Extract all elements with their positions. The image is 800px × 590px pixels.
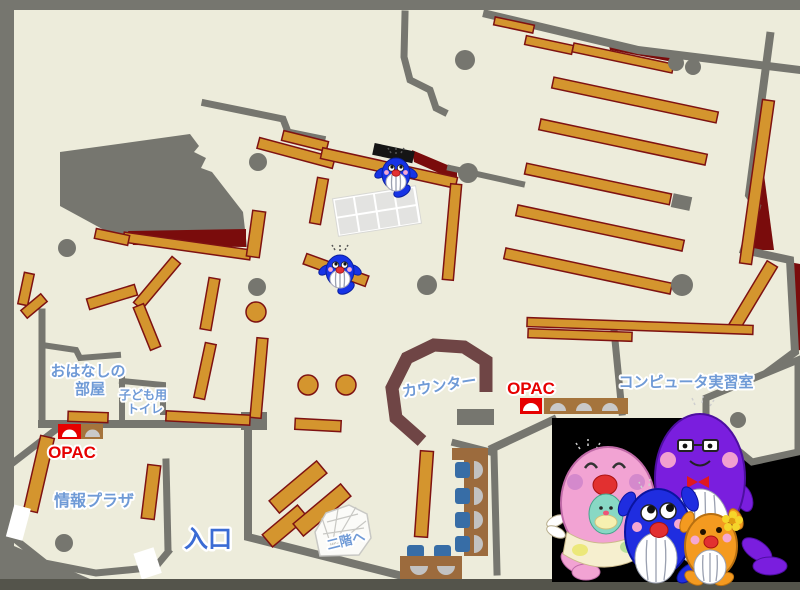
label-opac-right: OPAC: [507, 379, 555, 398]
label-kids-toilet-line1: 子ども用: [119, 388, 167, 402]
pillar: [671, 274, 693, 296]
label-entrance: 入口: [184, 526, 232, 553]
library-floor-map: おはなしの 部屋 子ども用 トイレ OPAC 情報プラザ 入口 カウンター OP…: [0, 0, 800, 590]
table-cell: [398, 206, 419, 225]
label-storytelling-room-line2: 部屋: [75, 380, 105, 398]
pillar: [58, 239, 76, 257]
opac-station-left: [58, 424, 103, 439]
table-cell: [338, 216, 359, 235]
round-table: [336, 375, 356, 395]
pillar: [249, 153, 267, 171]
pillar: [668, 55, 684, 71]
table-cell: [378, 209, 399, 228]
label-kids-toilet-line2: トイレ: [127, 402, 163, 416]
table-cell: [355, 194, 376, 213]
pillar: [458, 163, 478, 183]
round-table: [298, 375, 318, 395]
bookshelf: [295, 418, 342, 431]
floor-map-canvas: おはなしの 部屋 子ども用 トイレ OPAC 情報プラザ 入口 カウンター OP…: [0, 0, 800, 590]
label-opac-left: OPAC: [48, 443, 96, 462]
pillar: [417, 275, 437, 295]
table-cell: [335, 198, 356, 217]
label-computer-room: コンピュータ実習室: [618, 373, 753, 391]
pillar: [455, 50, 475, 70]
table-cell: [375, 191, 396, 210]
round-table: [246, 302, 266, 322]
label-storytelling-room-line1: おはなしの: [50, 363, 125, 380]
label-info-plaza: 情報プラザ: [54, 491, 134, 510]
pillar: [685, 59, 701, 75]
table-cell: [358, 213, 379, 232]
bookshelf: [68, 411, 108, 422]
opac-station-right: [520, 398, 628, 414]
pillar: [55, 534, 73, 552]
pillar: [248, 278, 266, 296]
